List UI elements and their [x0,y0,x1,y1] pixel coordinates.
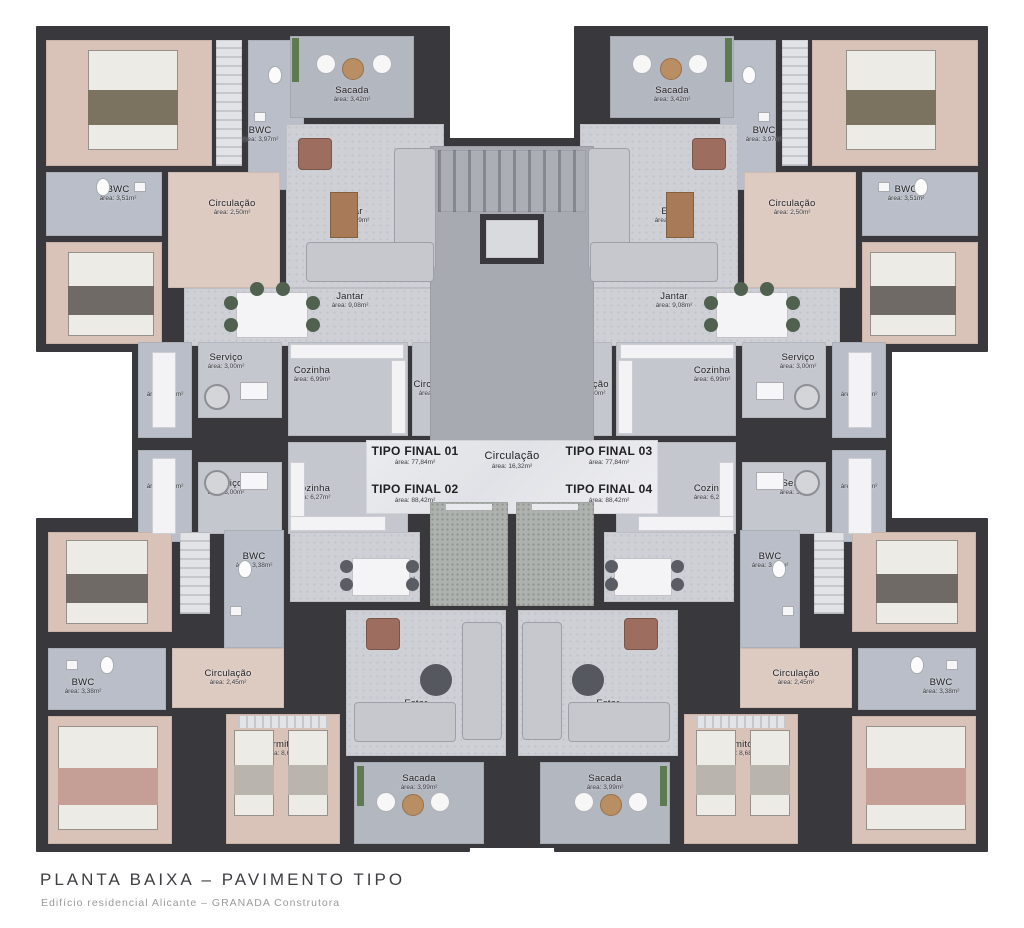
sink-decor [782,606,794,616]
room-area: área: 3,42m² [334,97,371,104]
toilet-decor [742,66,756,84]
room-label: BWC [930,678,953,688]
armchair-decor [692,138,726,170]
wardrobe-strip [238,716,328,728]
room-label: Circulação [205,669,252,679]
sink-decor [758,112,770,122]
room-label: Circulação [773,669,820,679]
room-label: BWC [249,126,272,136]
counter-decor [290,516,386,531]
room-area: área: 3,51m² [100,196,137,203]
room-label-group: Circulaçãoárea: 2,45m² [205,669,252,687]
room-area: área: 3,00m² [208,364,245,371]
balcony-chair-decor [632,54,652,74]
chair-decor [406,578,419,591]
room-area: área: 3,38m² [923,689,960,696]
room-label-group: Cozinhaárea: 6,99m² [294,366,331,384]
armchair-decor [366,618,400,650]
room-u2-bwc1: BWCárea: 3,38m² [224,530,284,648]
counter-decor [620,344,734,359]
planter-decor [357,766,364,806]
room-u2-circ: Circulaçãoárea: 2,45m² [172,648,284,708]
chair-decor [340,578,353,591]
room-label-group: Circulaçãoárea: 2,50m² [209,199,256,217]
coffee-table-decor [666,192,694,238]
balcony-table-decor [342,58,364,80]
sink-decor [230,606,242,616]
room-area: área: 9,08m² [656,303,693,310]
sink-decor [134,182,146,192]
balcony-chair-decor [628,792,648,812]
chair-decor [224,318,238,332]
bed-decor [68,252,154,336]
plan-title: PLANTA BAIXA – PAVIMENTO TIPO [40,870,405,890]
room-label-group: BWCárea: 3,97m² [242,126,279,144]
room-area: área: 3,42m² [654,97,691,104]
wardrobe-strip [180,532,210,614]
room-label: Serviço [781,353,814,363]
room-label: Cozinha [694,366,730,376]
room-u4-circ: Circulaçãoárea: 2,45m² [740,648,852,708]
bed-blanket [88,90,178,125]
dining-table-decor [716,292,788,338]
bed-blanket [696,765,736,795]
washer-decor [204,470,230,496]
chair-decor [406,560,419,573]
elevator-shaft [430,502,508,606]
room-label: Serviço [209,353,242,363]
room-label: Cozinha [294,366,330,376]
chair-decor [760,282,774,296]
sink-decor [66,660,78,670]
room-area: área: 6,99m² [294,377,331,384]
bed-blanket [288,765,328,795]
chair-decor [704,318,718,332]
water-heater-decor [152,458,176,534]
sink-decor [254,112,266,122]
counter-decor [638,516,734,531]
bed-decor [288,730,328,816]
sofa-decor [590,242,718,282]
water-heater-decor [152,352,176,428]
toilet-decor [268,66,282,84]
balcony-chair-decor [688,54,708,74]
toilet-decor [100,656,114,674]
coffee-table-decor [572,664,604,696]
armchair-decor [298,138,332,170]
bed-decor [876,540,958,624]
laundry-sink-decor [240,382,268,400]
room-u3-circ: Circulaçãoárea: 2,50m² [744,172,856,288]
washer-decor [204,384,230,410]
bed-decor [234,730,274,816]
room-area: área: 2,50m² [774,210,811,217]
water-heater-decor [848,352,872,428]
chair-decor [276,282,290,296]
room-label: Circulação [209,199,256,209]
stair-landing [480,214,544,264]
bed-decor [66,540,148,624]
sink-decor [946,660,958,670]
chair-decor [786,318,800,332]
wardrobe-strip [216,40,242,166]
wardrobe-strip [696,716,786,728]
balcony-table-decor [600,794,622,816]
chair-decor [605,560,618,573]
bed-blanket [68,286,154,316]
coffee-table-decor [330,192,358,238]
sofa-decor [306,242,434,282]
sofa-decor [354,702,456,742]
room-label-group: Sacadaárea: 3,42m² [334,86,371,104]
bed-decor [846,50,936,150]
room-area: área: 9,08m² [332,303,369,310]
elevator-door [532,504,578,510]
chair-decor [671,560,684,573]
balcony-table-decor [660,58,682,80]
room-area: área: 3,00m² [780,364,817,371]
room-u4-bwc1: BWCárea: 3,38m² [740,530,800,648]
bed-decor [870,252,956,336]
room-label: Sacada [588,774,621,784]
hall-floor [366,440,658,514]
plan-subtitle: Edifício residencial Alicante – GRANADA … [41,897,340,909]
chair-decor [306,296,320,310]
room-label: Sacada [402,774,435,784]
toilet-decor [914,178,928,196]
floor-plan-canvas: Suiteárea: 11,04m²Suiteárea: 11,04m²BWCá… [0,0,1024,928]
sink-decor [878,182,890,192]
room-label-group: Sacadaárea: 3,99m² [401,774,438,792]
room-label: Sacada [335,86,368,96]
laundry-sink-decor [756,472,784,490]
bed-blanket [846,90,936,125]
bed-blanket [876,574,958,604]
bed-blanket [234,765,274,795]
elevator-shaft [516,502,594,606]
toilet-decor [238,560,252,578]
room-label: BWC [753,126,776,136]
chair-decor [605,578,618,591]
room-label-group: Jantarárea: 9,08m² [332,292,369,310]
room-label-group: BWCárea: 3,38m² [65,678,102,696]
room-label-group: Serviçoárea: 3,00m² [208,353,245,371]
room-label: Circulação [769,199,816,209]
room-label-group: Serviçoárea: 3,00m² [780,353,817,371]
laundry-sink-decor [240,472,268,490]
dining-table-decor [352,558,410,596]
room-area: área: 6,99m² [694,377,731,384]
bed-blanket [66,574,148,604]
chair-decor [340,560,353,573]
coffee-table-decor [420,664,452,696]
room-label-group: Sacadaárea: 3,42m² [654,86,691,104]
armchair-decor [624,618,658,650]
room-area: área: 3,38m² [65,689,102,696]
dining-table-decor [614,558,672,596]
room-label-group: Jantarárea: 9,08m² [656,292,693,310]
dining-table-decor [236,292,308,338]
room-area: área: 2,45m² [210,680,247,687]
planter-decor [660,766,667,806]
room-u1-circ: Circulaçãoárea: 2,50m² [168,172,280,288]
sofa-decor [522,622,562,740]
chair-decor [734,282,748,296]
room-area: área: 3,97m² [242,137,279,144]
planter-decor [292,38,299,82]
bed-decor [866,726,966,830]
planter-decor [725,38,732,82]
chair-decor [671,578,684,591]
wardrobe-strip [814,532,844,614]
laundry-sink-decor [756,382,784,400]
balcony-table-decor [402,794,424,816]
bed-blanket [58,768,158,805]
toilet-decor [910,656,924,674]
water-heater-decor [848,458,872,534]
room-label: Sacada [655,86,688,96]
counter-decor [290,344,404,359]
counter-decor [618,360,633,434]
chair-decor [224,296,238,310]
toilet-decor [772,560,786,578]
chair-decor [704,296,718,310]
room-area: área: 3,51m² [888,196,925,203]
room-label: BWC [107,185,130,195]
balcony-chair-decor [376,792,396,812]
bed-decor [58,726,158,830]
bed-decor [88,50,178,150]
wardrobe-strip [782,40,808,166]
room-label-group: Sacadaárea: 3,99m² [587,774,624,792]
floor-plan: Suiteárea: 11,04m²Suiteárea: 11,04m²BWCá… [0,0,1024,928]
balcony-chair-decor [430,792,450,812]
chair-decor [786,296,800,310]
washer-decor [794,384,820,410]
bed-decor [750,730,790,816]
bed-blanket [750,765,790,795]
chair-decor [250,282,264,296]
room-label: Jantar [660,292,688,302]
room-label-group: Cozinhaárea: 6,99m² [694,366,731,384]
room-area: área: 3,99m² [587,785,624,792]
washer-decor [794,470,820,496]
room-area: área: 2,45m² [778,680,815,687]
bed-blanket [866,768,966,805]
balcony-chair-decor [316,54,336,74]
room-area: área: 3,99m² [401,785,438,792]
room-label-group: Circulaçãoárea: 2,50m² [769,199,816,217]
balcony-chair-decor [574,792,594,812]
bed-decor [696,730,736,816]
sofa-decor [462,622,502,740]
stair-flight [438,150,586,212]
room-label: BWC [72,678,95,688]
toilet-decor [96,178,110,196]
sofa-decor [568,702,670,742]
chair-decor [306,318,320,332]
room-label-group: BWCárea: 3,38m² [923,678,960,696]
room-area: área: 2,50m² [214,210,251,217]
balcony-chair-decor [372,54,392,74]
counter-decor [391,360,406,434]
bed-blanket [870,286,956,316]
room-label-group: Circulaçãoárea: 2,45m² [773,669,820,687]
room-label: Jantar [336,292,364,302]
elevator-door [446,504,492,510]
